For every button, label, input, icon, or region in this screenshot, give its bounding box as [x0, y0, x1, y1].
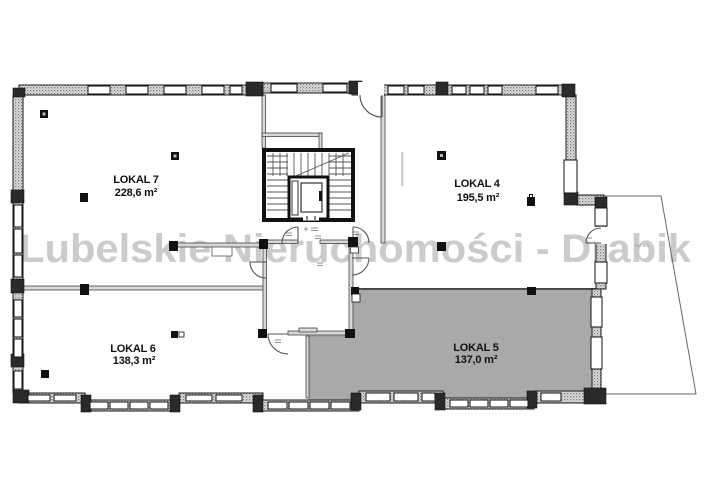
room-lokal-5-area: 137,0 m²	[455, 354, 498, 366]
room-lokal-6-name: LOKAL 6	[110, 343, 156, 355]
elevator	[289, 177, 328, 221]
stair-core	[264, 150, 353, 221]
terrace-door-gap	[595, 227, 607, 244]
room-lokal-4-name: LOKAL 4	[454, 178, 501, 190]
terrace-label: taras	[635, 243, 650, 249]
room-lokal-5-name: LOKAL 5	[453, 342, 499, 354]
room-lokal-6-area: 138,3 m²	[113, 355, 156, 367]
room-lokal-4-area: 195,5 m²	[457, 192, 500, 204]
floor-plan-image: Lubelskie Nieruchomości - Drabik	[0, 0, 706, 500]
room-lokal-7-area: 228,6 m²	[115, 187, 158, 199]
floor-plan-svg: Lubelskie Nieruchomości - Drabik	[0, 0, 706, 500]
entrance-door-gap	[358, 82, 384, 96]
room-lokal-7-name: LOKAL 7	[113, 174, 159, 186]
